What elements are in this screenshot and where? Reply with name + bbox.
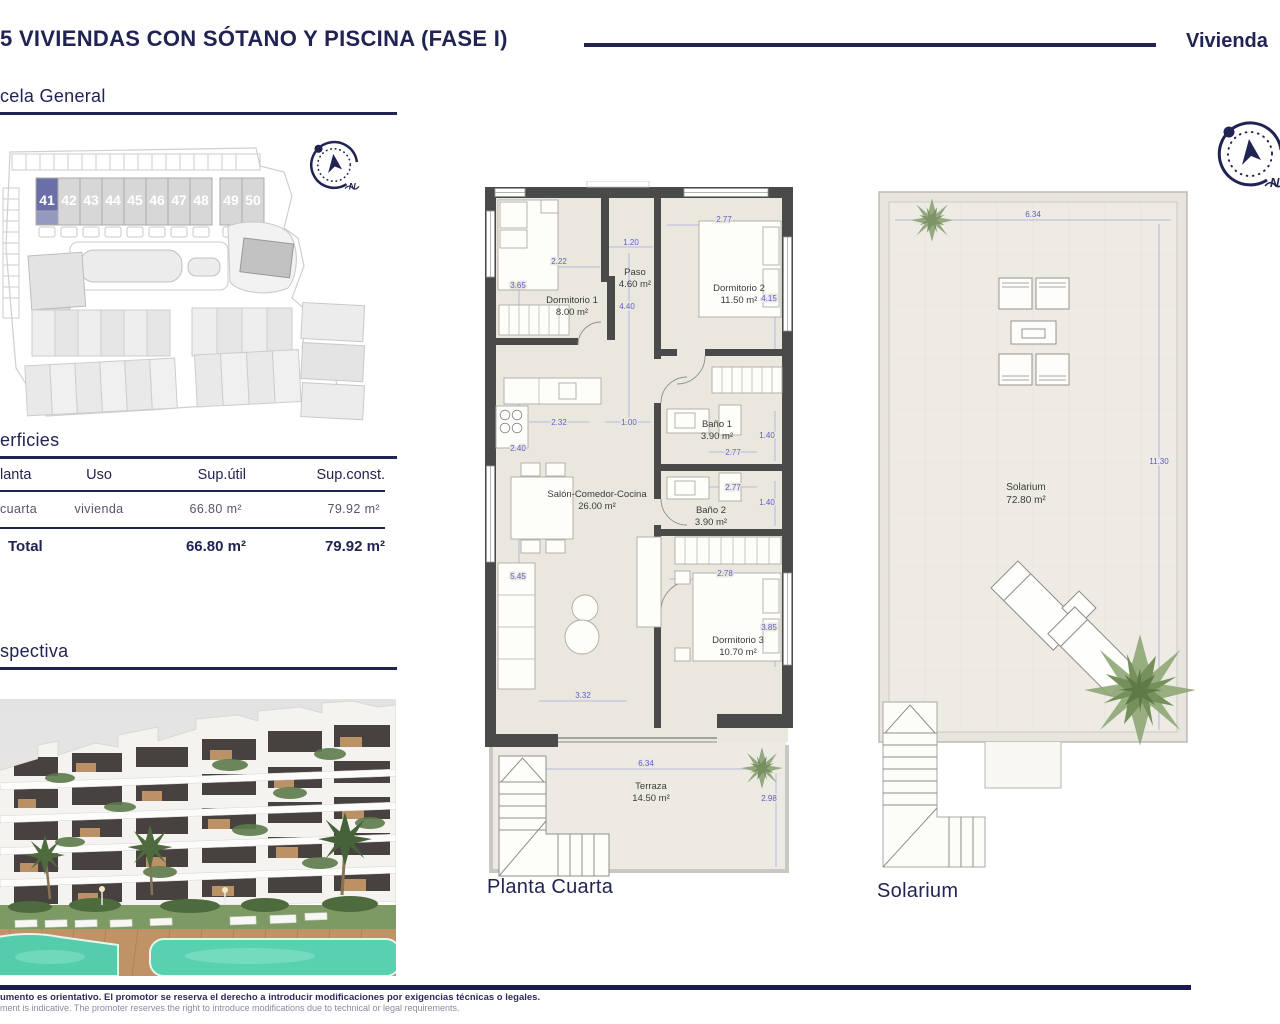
svg-text:2.22: 2.22 (551, 257, 567, 266)
exterior-landing (587, 181, 649, 187)
brochure-page: 5 VIVIENDAS CON SÓTANO Y PISCINA (FASE I… (0, 0, 1280, 1024)
cell-sup-const: 79.92 m² (250, 502, 385, 516)
col-header-planta: lanta (0, 467, 58, 483)
svg-text:1.20: 1.20 (623, 238, 639, 247)
room-name: Dormitorio 3 (712, 635, 764, 646)
svg-text:4.15: 4.15 (761, 294, 777, 303)
pools (0, 934, 396, 976)
superficies-rule (0, 456, 397, 459)
svg-text:6.34: 6.34 (638, 759, 654, 768)
svg-text:2.77: 2.77 (716, 215, 732, 224)
solarium-height-dim: 11.30 (1149, 457, 1169, 466)
svg-text:5.45: 5.45 (510, 572, 526, 581)
disclaimer-es: umento es orientativo. El promotor se re… (0, 992, 540, 1003)
room-area: 10.70 m² (719, 647, 757, 658)
plots-far-right (297, 303, 369, 420)
header-right-label: Vivienda (1186, 30, 1268, 53)
compass-icon: N (303, 134, 365, 196)
solarium-plan: Solarium 72.80 m² 6.34 11.30 (875, 190, 1207, 880)
cell-sup-util: 66.80 m² (140, 502, 250, 516)
unit-numbers: 41 42 43 44 45 46 47 48 49 50 (39, 192, 261, 208)
svg-text:42: 42 (61, 192, 77, 208)
room-area: 11.50 m² (721, 295, 758, 306)
page-title: 5 VIVIENDAS CON SÓTANO Y PISCINA (FASE I… (0, 26, 508, 52)
cell-planta: cuarta (0, 502, 58, 516)
solarium-palm (1084, 634, 1196, 746)
floor-plan-planta-cuarta: Dormitorio 1 8.00 m² Paso 4.60 m² Dormit… (479, 181, 814, 881)
table-total-row: Total 66.80 m² 79.92 m² (0, 529, 385, 555)
total-sup-const: 79.92 m² (250, 538, 385, 555)
plots-row-a (32, 308, 292, 356)
room-area: 8.00 m² (556, 307, 588, 318)
solarium-width-dim: 6.34 (1025, 210, 1041, 219)
room-name: Salón-Comedor-Cocina (547, 489, 647, 500)
compass-north-label: N (349, 181, 357, 192)
svg-text:48: 48 (193, 192, 209, 208)
svg-text:46: 46 (149, 192, 165, 208)
plots-row-b (25, 350, 301, 416)
svg-text:49: 49 (223, 192, 239, 208)
parcela-rule (0, 112, 397, 115)
footer-rule (0, 985, 1191, 990)
room-area: 72.80 m² (1006, 495, 1046, 506)
svg-text:3.32: 3.32 (575, 691, 591, 700)
svg-text:1.40: 1.40 (759, 498, 775, 507)
section-title-perspectiva: spectiva (0, 641, 68, 662)
perspective-render (0, 699, 396, 976)
svg-text:41: 41 (39, 192, 55, 208)
floor-plan-caption: Planta Cuarta (487, 876, 613, 899)
compass-north-label: N (1270, 175, 1280, 190)
parking-strip-left (3, 188, 19, 318)
svg-text:2.78: 2.78 (717, 569, 733, 578)
room-name: Baño 2 (696, 505, 726, 516)
svg-text:3.85: 3.85 (761, 623, 777, 632)
section-title-parcela: cela General (0, 86, 106, 107)
col-header-sup-util: Sup.útil (140, 467, 250, 483)
room-area: 3.90 m² (695, 517, 727, 528)
room-area: 3.90 m² (701, 431, 733, 442)
svg-text:1.00: 1.00 (621, 418, 637, 427)
room-area: 14.50 m² (632, 793, 670, 804)
room-area: 4.60 m² (619, 279, 651, 290)
svg-text:2.40: 2.40 (510, 444, 526, 453)
table-row: cuarta vivienda 66.80 m² 79.92 m² (0, 492, 385, 529)
svg-text:3.65: 3.65 (510, 281, 526, 290)
col-header-sup-const: Sup.const. (250, 467, 385, 483)
site-building-right (228, 222, 296, 293)
compass-icon: N (1208, 112, 1280, 196)
disclaimer-en: ment is indicative. The promoter reserve… (0, 1003, 460, 1013)
svg-text:4.40: 4.40 (619, 302, 635, 311)
col-header-uso: Uso (58, 467, 140, 483)
solarium-caption: Solarium (877, 880, 958, 903)
room-area: 26.00 m² (578, 501, 616, 512)
surfaces-table-header: lanta Uso Sup.útil Sup.const. (0, 467, 385, 492)
cell-uso: vivienda (58, 502, 140, 516)
svg-text:47: 47 (171, 192, 187, 208)
solarium-step (985, 742, 1061, 788)
svg-text:1.40: 1.40 (759, 431, 775, 440)
community-pool (70, 242, 228, 290)
parking-strip-top (12, 154, 260, 170)
solarium-plant (910, 198, 953, 241)
room-name: Terraza (635, 781, 667, 792)
svg-text:44: 44 (105, 192, 121, 208)
total-label: Total (0, 538, 58, 555)
header-rule (584, 43, 1156, 47)
room-name: Paso (624, 267, 646, 278)
svg-text:45: 45 (127, 192, 143, 208)
svg-text:2.32: 2.32 (551, 418, 567, 427)
terrace-plant (741, 747, 782, 788)
room-name: Baño 1 (702, 419, 732, 430)
room-name: Dormitorio 1 (546, 295, 598, 306)
svg-text:2.98: 2.98 (761, 794, 777, 803)
room-name: Solarium (1006, 482, 1045, 493)
svg-text:2.77: 2.77 (725, 448, 741, 457)
surfaces-table: lanta Uso Sup.útil Sup.const. cuarta viv… (0, 467, 385, 555)
total-sup-util: 66.80 m² (140, 538, 250, 555)
perspectiva-rule (0, 667, 397, 670)
svg-text:50: 50 (245, 192, 261, 208)
room-name: Dormitorio 2 (713, 283, 765, 294)
svg-text:43: 43 (83, 192, 99, 208)
section-title-superficies: erficies (0, 430, 59, 451)
svg-text:2.77: 2.77 (725, 483, 741, 492)
